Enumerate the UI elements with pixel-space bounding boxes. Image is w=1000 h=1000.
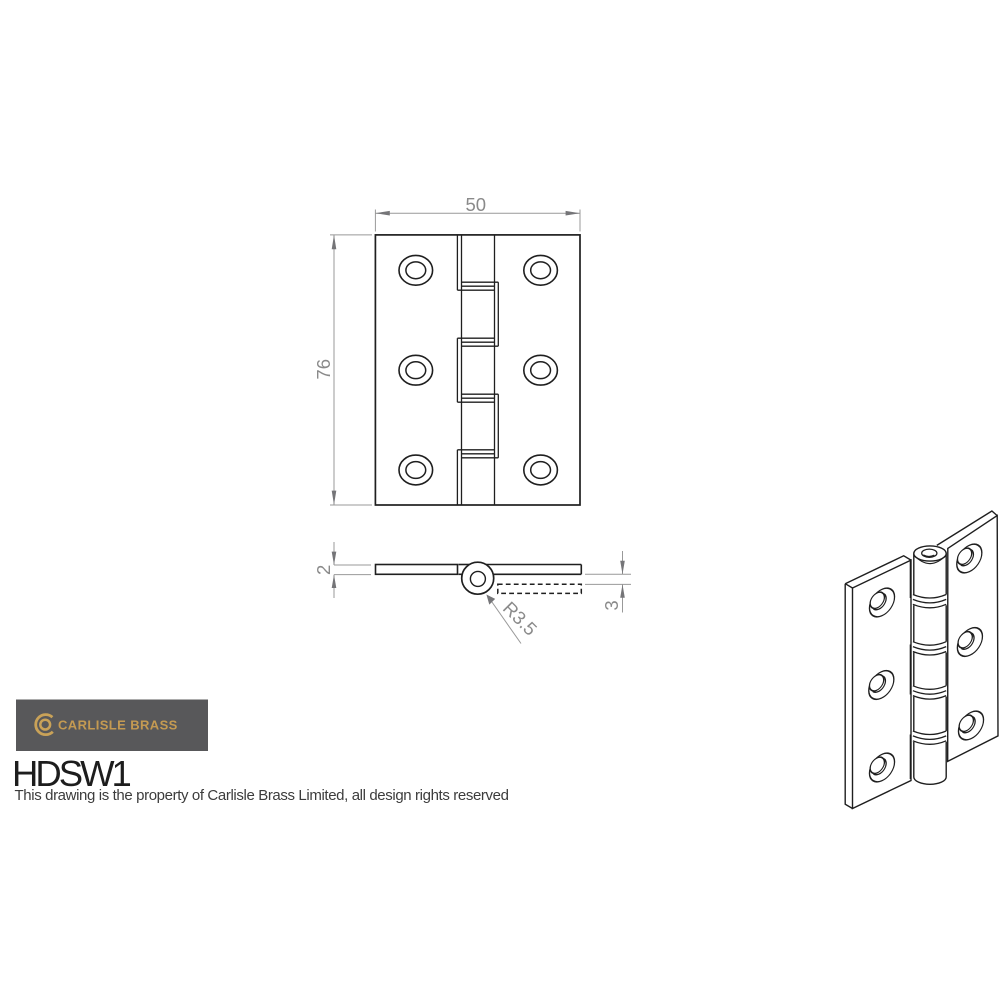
svg-text:This drawing is the property o: This drawing is the property of Carlisle… [15, 787, 509, 804]
svg-text:76: 76 [313, 359, 334, 380]
svg-text:2: 2 [313, 565, 334, 575]
svg-text:50: 50 [466, 194, 487, 215]
svg-text:CARLISLE BRASS: CARLISLE BRASS [58, 718, 178, 733]
svg-text:3: 3 [601, 600, 622, 610]
